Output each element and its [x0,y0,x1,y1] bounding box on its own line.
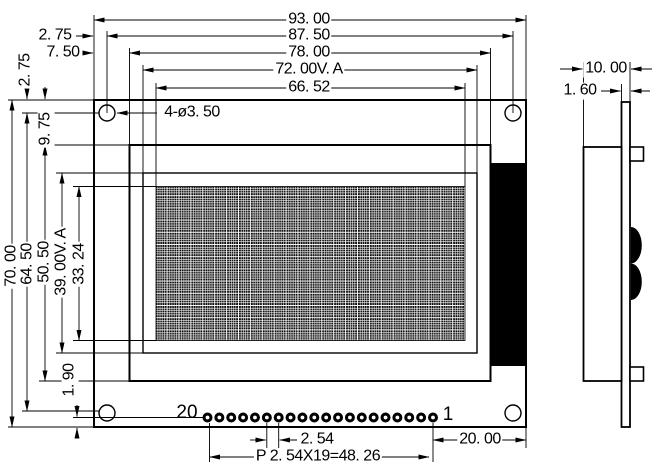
pin-hole [206,416,210,420]
black-film-strip [491,163,525,366]
label-hole-span-height: 64. 50 [20,241,37,286]
mounting-hole-bottom-right [505,405,521,421]
label-aa-height: 33. 24 [72,241,89,286]
pin-hole [253,416,257,420]
pin-hole [312,416,316,420]
pin-hole [395,416,399,420]
pin-hole [289,416,293,420]
label-va-width: 72. 00V. A [273,62,344,79]
label-edge-to-bezel-v: 9. 75 [38,110,55,147]
side-top-tab [630,147,644,161]
label-pin-row-offset: 1. 90 [62,361,79,398]
label-pin-20: 20 [175,403,198,423]
label-pin-pitch: 2. 54 [298,432,335,449]
pin-hole [217,416,221,420]
front-view [94,100,526,427]
label-edge-to-hole-h: 2. 75 [36,28,73,45]
mounting-hole-bottom-left [99,405,115,421]
pin-hole [336,416,340,420]
pin-hole [324,416,328,420]
label-aa-width: 66. 52 [286,80,331,97]
label-hole-span-width: 87. 50 [286,28,331,45]
pin-hole [372,416,376,420]
label-total-thickness: 10. 00 [583,61,628,78]
label-pcb-thickness: 1. 60 [561,83,598,100]
pin-hole [241,416,245,420]
side-pcb [622,102,631,427]
label-pin-end-margin: 20. 00 [457,432,502,449]
label-bezel-height: 50. 50 [37,239,54,284]
label-va-height: 39. 00V. A [54,226,71,297]
pin-hole [419,416,423,420]
label-pin-row-total: P 2. 54X19=48. 26 [254,449,382,466]
pin-hole [384,416,388,420]
pin-hole [265,416,269,420]
pin-hole [301,416,305,420]
side-module-body [584,147,622,381]
side-cob-blobs [631,227,642,300]
pin-hole [277,416,281,420]
pin-hole [360,416,364,420]
pin-hole [431,416,435,420]
label-bezel-width: 78. 00 [286,45,331,62]
label-hole-callout: 4-ø3. 50 [162,105,222,122]
label-pin-1: 1 [442,405,455,425]
side-bottom-tab [630,367,644,381]
pin-hole [407,416,411,420]
pin-hole [229,416,233,420]
pin-hole [348,416,352,420]
label-edge-to-bezel-h: 7. 50 [44,45,81,62]
active-area-pixel-grid [156,187,465,341]
side-view [584,102,644,427]
lcd-module-dimension-drawing: 93. 00 87. 50 78. 00 72. 00V. A 66. 52 2… [0,0,658,476]
label-edge-to-hole-v: 2. 75 [18,51,35,88]
